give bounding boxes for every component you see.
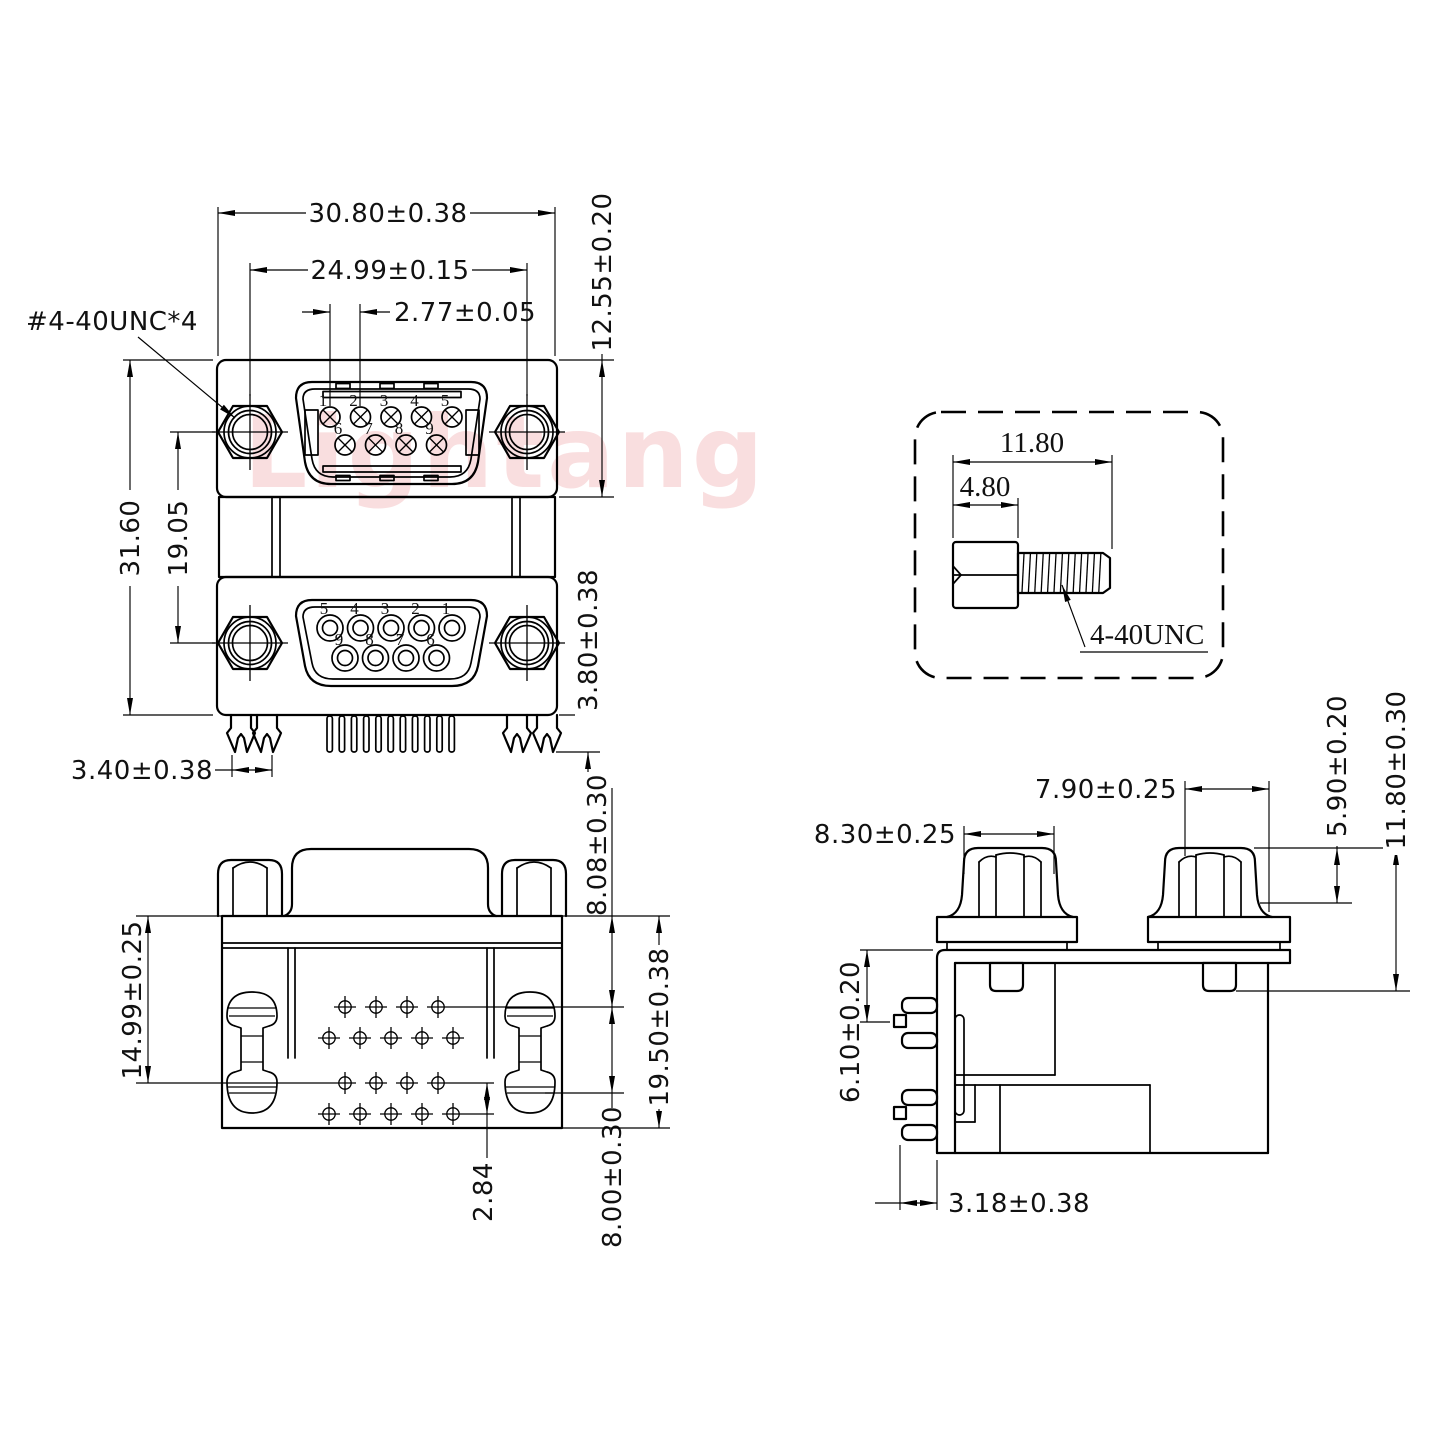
pin-number: 9 [425, 419, 434, 438]
screw-shank [990, 963, 1023, 991]
jack-screw [953, 542, 1110, 608]
pin-number: 4 [410, 391, 419, 410]
pin-number: 6 [426, 630, 435, 649]
solder-pins-front [327, 716, 454, 752]
svg-text:3.80±0.38: 3.80±0.38 [574, 569, 604, 711]
pin-number: 1 [442, 599, 451, 618]
right-nut-profile [502, 860, 566, 916]
pin-number: 8 [395, 419, 404, 438]
svg-text:#4-40UNC*4: #4-40UNC*4 [26, 307, 198, 337]
screw-shank [1203, 963, 1236, 991]
svg-text:5.90±0.20: 5.90±0.20 [1323, 695, 1353, 837]
screw-detail-view: 11.80 4.80 4-40UNC [915, 412, 1223, 678]
svg-text:8.08±0.30: 8.08±0.30 [583, 774, 613, 916]
screw-threads [1022, 554, 1101, 592]
pin-number: 2 [349, 391, 358, 410]
pin-number: 1 [319, 391, 328, 410]
dim-right-standoff-width: 7.90±0.25 [1035, 775, 1269, 912]
svg-text:2.77±0.05: 2.77±0.05 [394, 298, 536, 328]
dim-pin-protrusion: 3.80±0.38 [556, 560, 604, 772]
svg-text:30.80±0.38: 30.80±0.38 [308, 199, 467, 229]
pin-number: 2 [411, 599, 420, 618]
svg-text:3.40±0.38: 3.40±0.38 [71, 756, 213, 786]
svg-text:14.99±0.25: 14.99±0.25 [118, 920, 148, 1079]
svg-text:8.00±0.30: 8.00±0.30 [598, 1106, 628, 1248]
pin-number: 6 [334, 419, 343, 438]
shell-profile-top [218, 849, 566, 916]
dim-screw-head-length: 4.80 [953, 471, 1018, 538]
svg-text:7.90±0.25: 7.90±0.25 [1035, 775, 1177, 805]
pin-number: 3 [381, 599, 390, 618]
svg-text:6.10±0.20: 6.10±0.20 [836, 961, 866, 1103]
dim-overall-depth: 19.50±0.38 [562, 916, 675, 1128]
svg-text:19.50±0.38: 19.50±0.38 [645, 947, 675, 1106]
pin-number: 9 [335, 630, 344, 649]
left-nut-profile [218, 860, 282, 916]
svg-text:8.30±0.25: 8.30±0.25 [814, 820, 956, 850]
left-standoff [937, 848, 1077, 950]
svg-text:3.18±0.38: 3.18±0.38 [948, 1189, 1090, 1219]
svg-text:24.99±0.15: 24.99±0.15 [310, 256, 469, 286]
svg-text:11.80: 11.80 [1000, 427, 1064, 459]
side-view: 8.30±0.25 7.90±0.25 5.90±0.20 11.80±0.3 [814, 685, 1412, 1219]
bottom-view: 14.99±0.25 8.08±0.30 8.00±0.30 1 [118, 774, 675, 1248]
dshell-profile [284, 849, 496, 916]
dim-port-center-spacing: 19.05 [164, 432, 215, 643]
pin-number: 8 [365, 630, 374, 649]
dim-plate-to-pin-row: 6.10±0.20 [836, 950, 933, 1103]
pin-number: 5 [320, 599, 329, 618]
drawing-canvas: Lightang [0, 0, 1440, 1440]
drawing-page: Lightang [0, 0, 1440, 1440]
pin-number: 4 [350, 599, 359, 618]
svg-text:31.60: 31.60 [116, 500, 146, 577]
pin-number: 5 [441, 391, 450, 410]
dim-pin-row-pitch: 2.84 [449, 1083, 499, 1222]
dim-screw-thread-callout: 4-40UNC [1062, 585, 1208, 652]
svg-text:4.80: 4.80 [960, 471, 1011, 503]
svg-text:11.80±0.30: 11.80±0.30 [1382, 690, 1412, 849]
pin-number: 7 [364, 419, 373, 438]
pin-number: 3 [380, 391, 389, 410]
pin-number: 7 [396, 630, 405, 649]
svg-text:19.05: 19.05 [164, 500, 194, 577]
svg-text:12.55±0.20: 12.55±0.20 [588, 192, 618, 351]
dim-edge-to-row-offset: 14.99±0.25 [118, 916, 334, 1083]
svg-text:4-40UNC: 4-40UNC [1090, 619, 1204, 651]
dim-top-edge-to-first-row: 8.08±0.30 [449, 774, 670, 1007]
dim-leg-tip-width: 3.40±0.38 [71, 755, 272, 786]
dim-pin-tip-setback: 3.18±0.38 [875, 1145, 1090, 1219]
svg-text:2.84: 2.84 [469, 1162, 499, 1222]
